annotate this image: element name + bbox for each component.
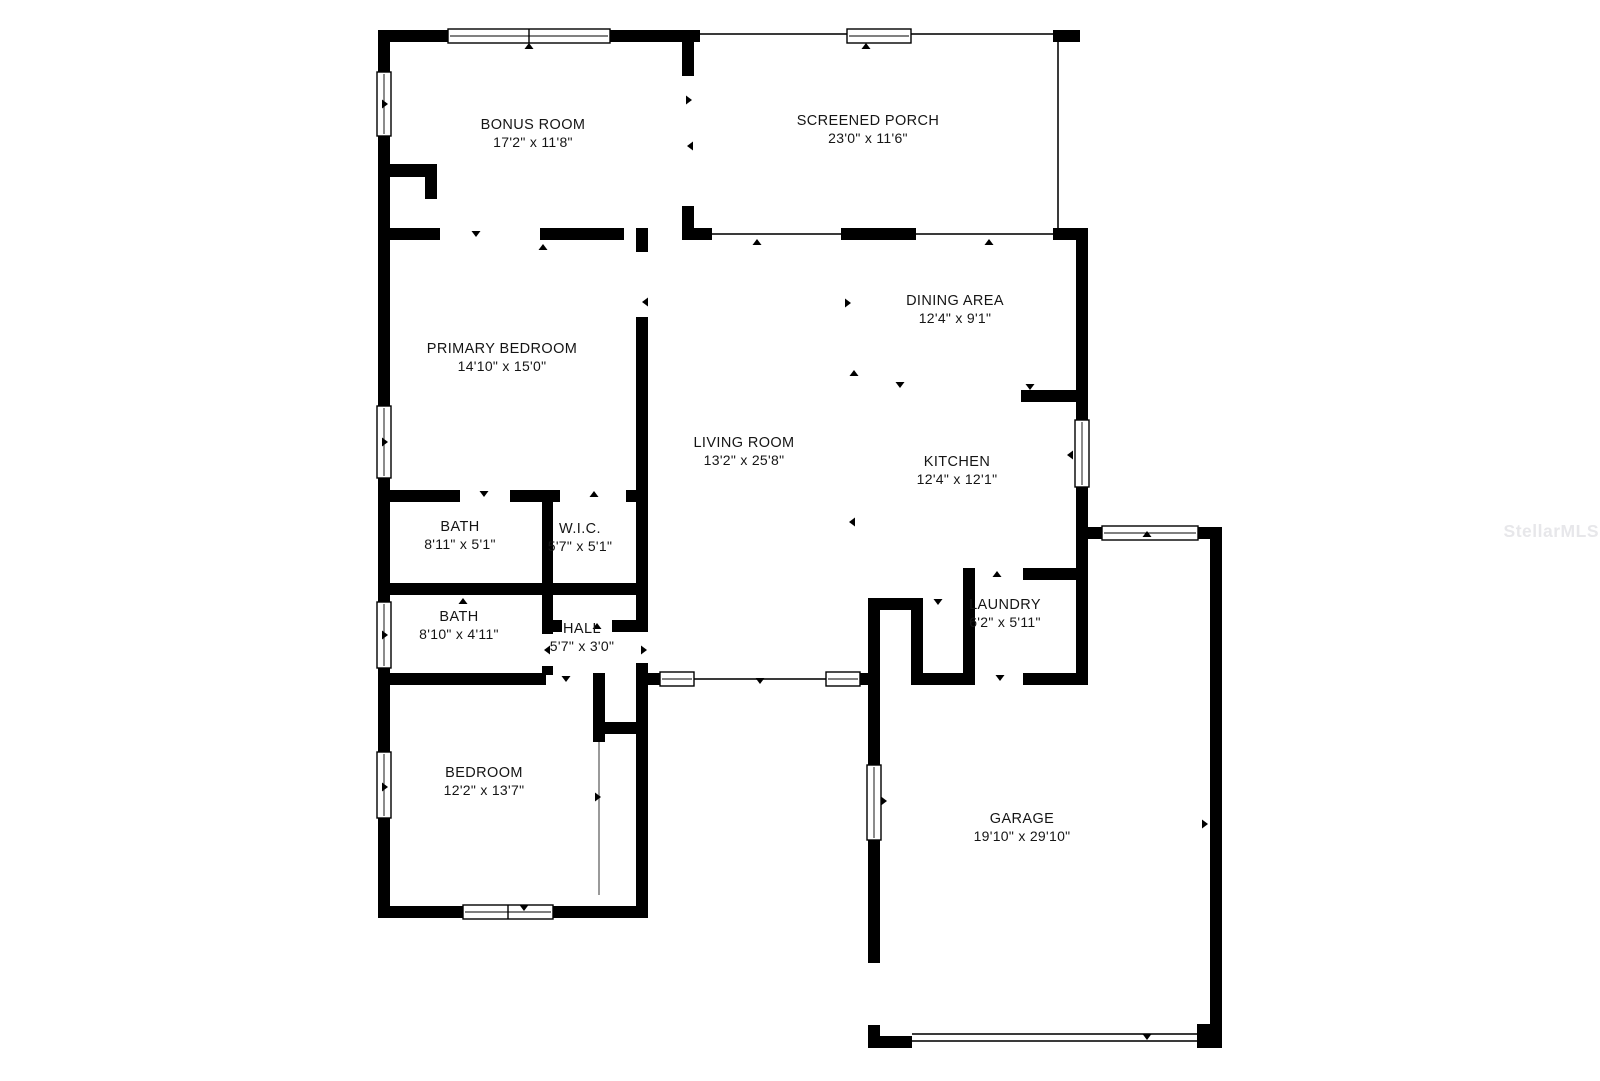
room-name: LAUNDRY [969, 597, 1041, 614]
room-label-bonus-room: BONUS ROOM 17'2" x 11'8" [481, 117, 586, 151]
room-name: DINING AREA [906, 293, 1004, 310]
room-label-laundry: LAUNDRY 6'2" x 5'11" [969, 597, 1041, 631]
room-name: LIVING ROOM [693, 435, 794, 452]
watermark: StellarMLS [1504, 521, 1599, 542]
room-name: SCREENED PORCH [797, 113, 940, 130]
room-name: KITCHEN [917, 454, 998, 471]
room-dims: 17'2" x 11'8" [481, 134, 586, 151]
room-dims: 12'2" x 13'7" [444, 782, 525, 799]
room-label-living-room: LIVING ROOM 13'2" x 25'8" [693, 435, 794, 469]
room-dims: 5'7" x 5'1" [548, 538, 613, 555]
walls [378, 30, 1222, 1048]
room-name: GARAGE [974, 811, 1071, 828]
room-name: BEDROOM [444, 765, 525, 782]
room-dims: 14'10" x 15'0" [427, 358, 578, 375]
room-label-wic: W.I.C. 5'7" x 5'1" [548, 521, 613, 555]
room-dims: 6'2" x 5'11" [969, 614, 1041, 631]
room-dims: 19'10" x 29'10" [974, 828, 1071, 845]
room-label-primary-bedroom: PRIMARY BEDROOM 14'10" x 15'0" [427, 341, 578, 375]
floor-plan-canvas: BONUS ROOM 17'2" x 11'8" SCREENED PORCH … [0, 0, 1600, 1081]
room-dims: 5'7" x 3'0" [550, 638, 615, 655]
room-name: PRIMARY BEDROOM [427, 341, 578, 358]
floor-plan-drawing [0, 0, 1600, 1081]
room-label-hall: HALL 5'7" x 3'0" [550, 621, 615, 655]
room-label-garage: GARAGE 19'10" x 29'10" [974, 811, 1071, 845]
room-dims: 8'10" x 4'11" [419, 626, 499, 643]
room-name: BATH [424, 519, 496, 536]
room-name: BATH [419, 609, 499, 626]
room-dims: 8'11" x 5'1" [424, 536, 496, 553]
room-name: BONUS ROOM [481, 117, 586, 134]
room-dims: 13'2" x 25'8" [693, 452, 794, 469]
room-dims: 23'0" x 11'6" [797, 130, 940, 147]
room-name: HALL [550, 621, 615, 638]
room-dims: 12'4" x 12'1" [917, 471, 998, 488]
room-name: W.I.C. [548, 521, 613, 538]
room-label-kitchen: KITCHEN 12'4" x 12'1" [917, 454, 998, 488]
room-label-bedroom: BEDROOM 12'2" x 13'7" [444, 765, 525, 799]
garage-door [912, 1034, 1197, 1041]
room-dims: 12'4" x 9'1" [906, 310, 1004, 327]
room-label-bath-2: BATH 8'10" x 4'11" [419, 609, 499, 643]
room-label-screened-porch: SCREENED PORCH 23'0" x 11'6" [797, 113, 940, 147]
room-label-bath-1: BATH 8'11" x 5'1" [424, 519, 496, 553]
room-label-dining-area: DINING AREA 12'4" x 9'1" [906, 293, 1004, 327]
